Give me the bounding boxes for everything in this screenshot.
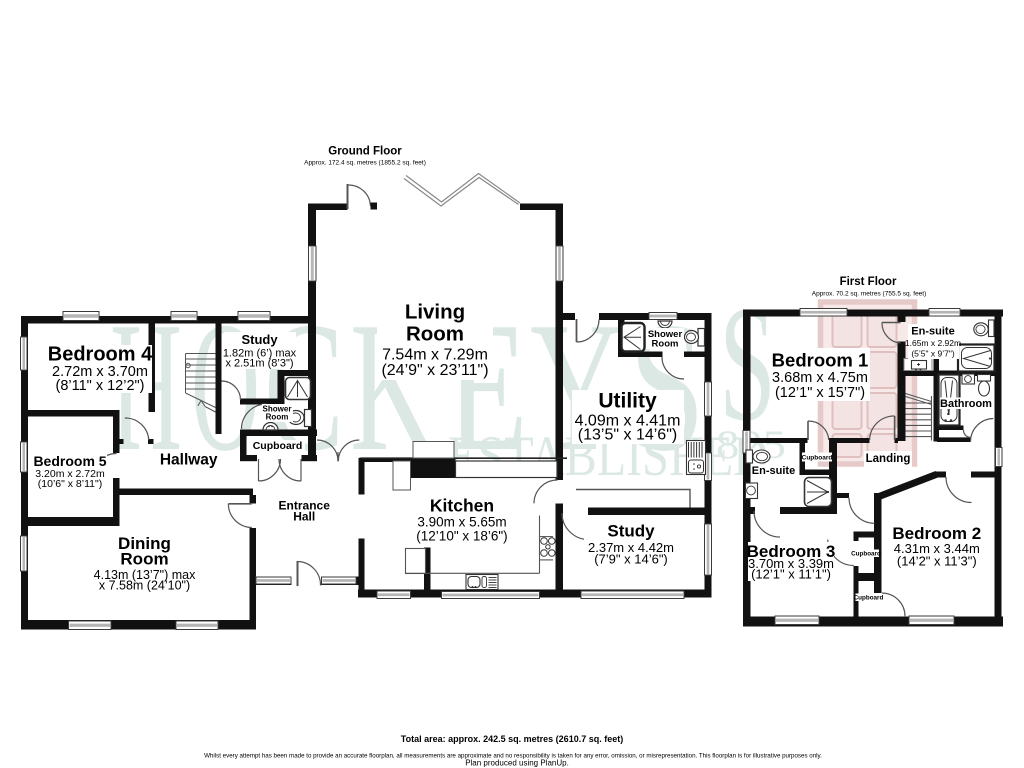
svg-text:Study: Study	[607, 522, 655, 541]
svg-text:Bedroom 5: Bedroom 5	[33, 453, 106, 469]
svg-text:Ground Floor: Ground Floor	[328, 146, 402, 158]
svg-text:Plan produced using PlanUp.: Plan produced using PlanUp.	[465, 759, 569, 768]
svg-text:(12’10" x 18’6"): (12’10" x 18’6")	[416, 529, 507, 544]
svg-text:Living: Living	[405, 301, 465, 324]
svg-text:Hall: Hall	[293, 510, 315, 524]
svg-text:Approx. 70.2 sq. metres (755.5: Approx. 70.2 sq. metres (755.5 sq. feet)	[812, 291, 927, 298]
svg-text:Hallway: Hallway	[160, 452, 218, 469]
svg-text:Cupboard: Cupboard	[802, 455, 833, 462]
svg-text:(14’2" x 11’3"): (14’2" x 11’3")	[897, 554, 977, 569]
svg-text:Bedroom 1: Bedroom 1	[772, 350, 869, 371]
svg-text:(7’9" x 14’6"): (7’9" x 14’6")	[594, 552, 668, 567]
svg-text:First Floor: First Floor	[840, 276, 897, 288]
svg-text:En-suite: En-suite	[911, 326, 954, 338]
svg-text:Room: Room	[120, 550, 168, 569]
svg-text:Cupboard: Cupboard	[253, 440, 303, 452]
svg-text:(24’9" x 23’11"): (24’9" x 23’11")	[381, 362, 488, 379]
svg-text:x 2.51m (8’3"): x 2.51m (8’3")	[225, 358, 293, 370]
svg-text:1.65m x 2.92m: 1.65m x 2.92m	[905, 338, 961, 348]
svg-text:(8’11" x 12’2"): (8’11" x 12’2")	[55, 378, 144, 394]
svg-text:7.54m x 7.29m: 7.54m x 7.29m	[382, 347, 488, 364]
svg-text:Approx. 172.4 sq. metres (1855: Approx. 172.4 sq. metres (1855.2 sq. fee…	[304, 160, 426, 167]
svg-text:Landing: Landing	[866, 453, 911, 465]
svg-text:3.68m x 4.75m: 3.68m x 4.75m	[772, 370, 868, 386]
svg-text:(13’5" x 14’6"): (13’5" x 14’6")	[578, 427, 677, 444]
svg-text:(5’5" x 9’7"): (5’5" x 9’7")	[911, 349, 955, 359]
svg-text:3.90m x 5.65m: 3.90m x 5.65m	[417, 515, 506, 530]
svg-text:En-suite: En-suite	[752, 465, 795, 477]
svg-text:(12’1" x 11’1"): (12’1" x 11’1")	[751, 567, 831, 582]
svg-text:(10’6" x 8’11"): (10’6" x 8’11")	[38, 478, 102, 490]
svg-text:(12’1" x 15’7"): (12’1" x 15’7")	[775, 385, 865, 401]
svg-text:Cupboard: Cupboard	[854, 595, 884, 602]
svg-text:Study: Study	[241, 332, 278, 347]
svg-text:Room: Room	[652, 339, 679, 350]
svg-text:Utility: Utility	[598, 390, 657, 413]
svg-text:Room: Room	[266, 413, 289, 422]
svg-text:Kitchen: Kitchen	[430, 496, 494, 516]
svg-text:Cupboard: Cupboard	[851, 551, 881, 558]
svg-text:Room: Room	[406, 323, 464, 346]
svg-text:x 7.58m (24’10"): x 7.58m (24’10")	[99, 579, 190, 593]
svg-text:Bedroom 4: Bedroom 4	[48, 344, 153, 366]
svg-text:Total area: approx. 242.5 sq.: Total area: approx. 242.5 sq. metres (26…	[401, 734, 623, 744]
svg-text:Bathroom: Bathroom	[940, 398, 992, 410]
